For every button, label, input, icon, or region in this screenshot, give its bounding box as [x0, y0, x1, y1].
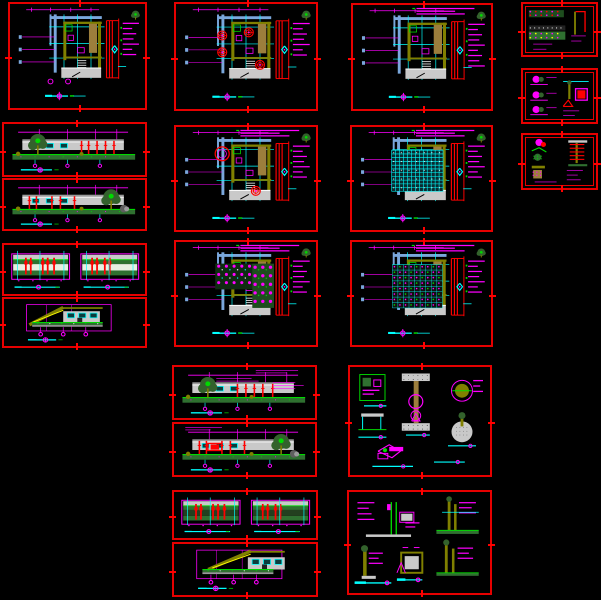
- section-sheet-2-drawing: [174, 544, 316, 595]
- section-sheet-1-drawing: [4, 299, 145, 346]
- plan-sheet-6-drawing: [176, 242, 316, 345]
- detail-sheet-a[interactable]: [348, 365, 492, 477]
- elevation-pair-sheet-1-drawing: [4, 245, 145, 294]
- plan-sheet-7-drawing: [352, 242, 491, 345]
- detail-sheet-small-3-drawing: [523, 135, 596, 188]
- elevation-sheet-4-drawing: [174, 424, 315, 475]
- plan-sheet-5[interactable]: [350, 125, 493, 232]
- detail-sheet-a-drawing: [350, 367, 490, 475]
- plan-sheet-1[interactable]: [8, 2, 147, 110]
- detail-sheet-small-1-drawing: [523, 4, 596, 55]
- plan-sheet-2-drawing: [176, 4, 316, 109]
- elevation-sheet-2[interactable]: [2, 178, 147, 231]
- section-sheet-2[interactable]: [172, 542, 318, 597]
- elevation-sheet-2-drawing: [4, 180, 145, 229]
- elevation-pair-sheet-2-drawing: [174, 492, 316, 538]
- detail-sheet-small-2[interactable]: [521, 68, 598, 124]
- elevation-pair-sheet-2[interactable]: [172, 490, 318, 540]
- detail-sheet-b-drawing: [349, 492, 490, 593]
- section-sheet-1[interactable]: [2, 297, 147, 348]
- elevation-sheet-1-drawing: [4, 124, 145, 175]
- plan-sheet-3-drawing: [353, 5, 491, 109]
- plan-sheet-4-drawing: [176, 127, 316, 230]
- plan-sheet-4[interactable]: [174, 125, 318, 232]
- cad-model-space: [0, 0, 601, 600]
- detail-sheet-small-1[interactable]: [521, 2, 598, 57]
- plan-sheet-7[interactable]: [350, 240, 493, 347]
- plan-sheet-2[interactable]: [174, 2, 318, 111]
- elevation-sheet-3[interactable]: [172, 365, 317, 420]
- plan-sheet-1-drawing: [10, 4, 145, 108]
- elevation-sheet-4[interactable]: [172, 422, 317, 477]
- elevation-pair-sheet-1[interactable]: [2, 243, 147, 296]
- elevation-sheet-3-drawing: [174, 367, 315, 418]
- plan-sheet-5-drawing: [352, 127, 491, 230]
- detail-sheet-small-2-drawing: [523, 70, 596, 122]
- detail-sheet-b[interactable]: [347, 490, 492, 595]
- detail-sheet-small-3[interactable]: [521, 133, 598, 190]
- plan-sheet-3[interactable]: [351, 3, 493, 111]
- plan-sheet-6[interactable]: [174, 240, 318, 347]
- elevation-sheet-1[interactable]: [2, 122, 147, 177]
